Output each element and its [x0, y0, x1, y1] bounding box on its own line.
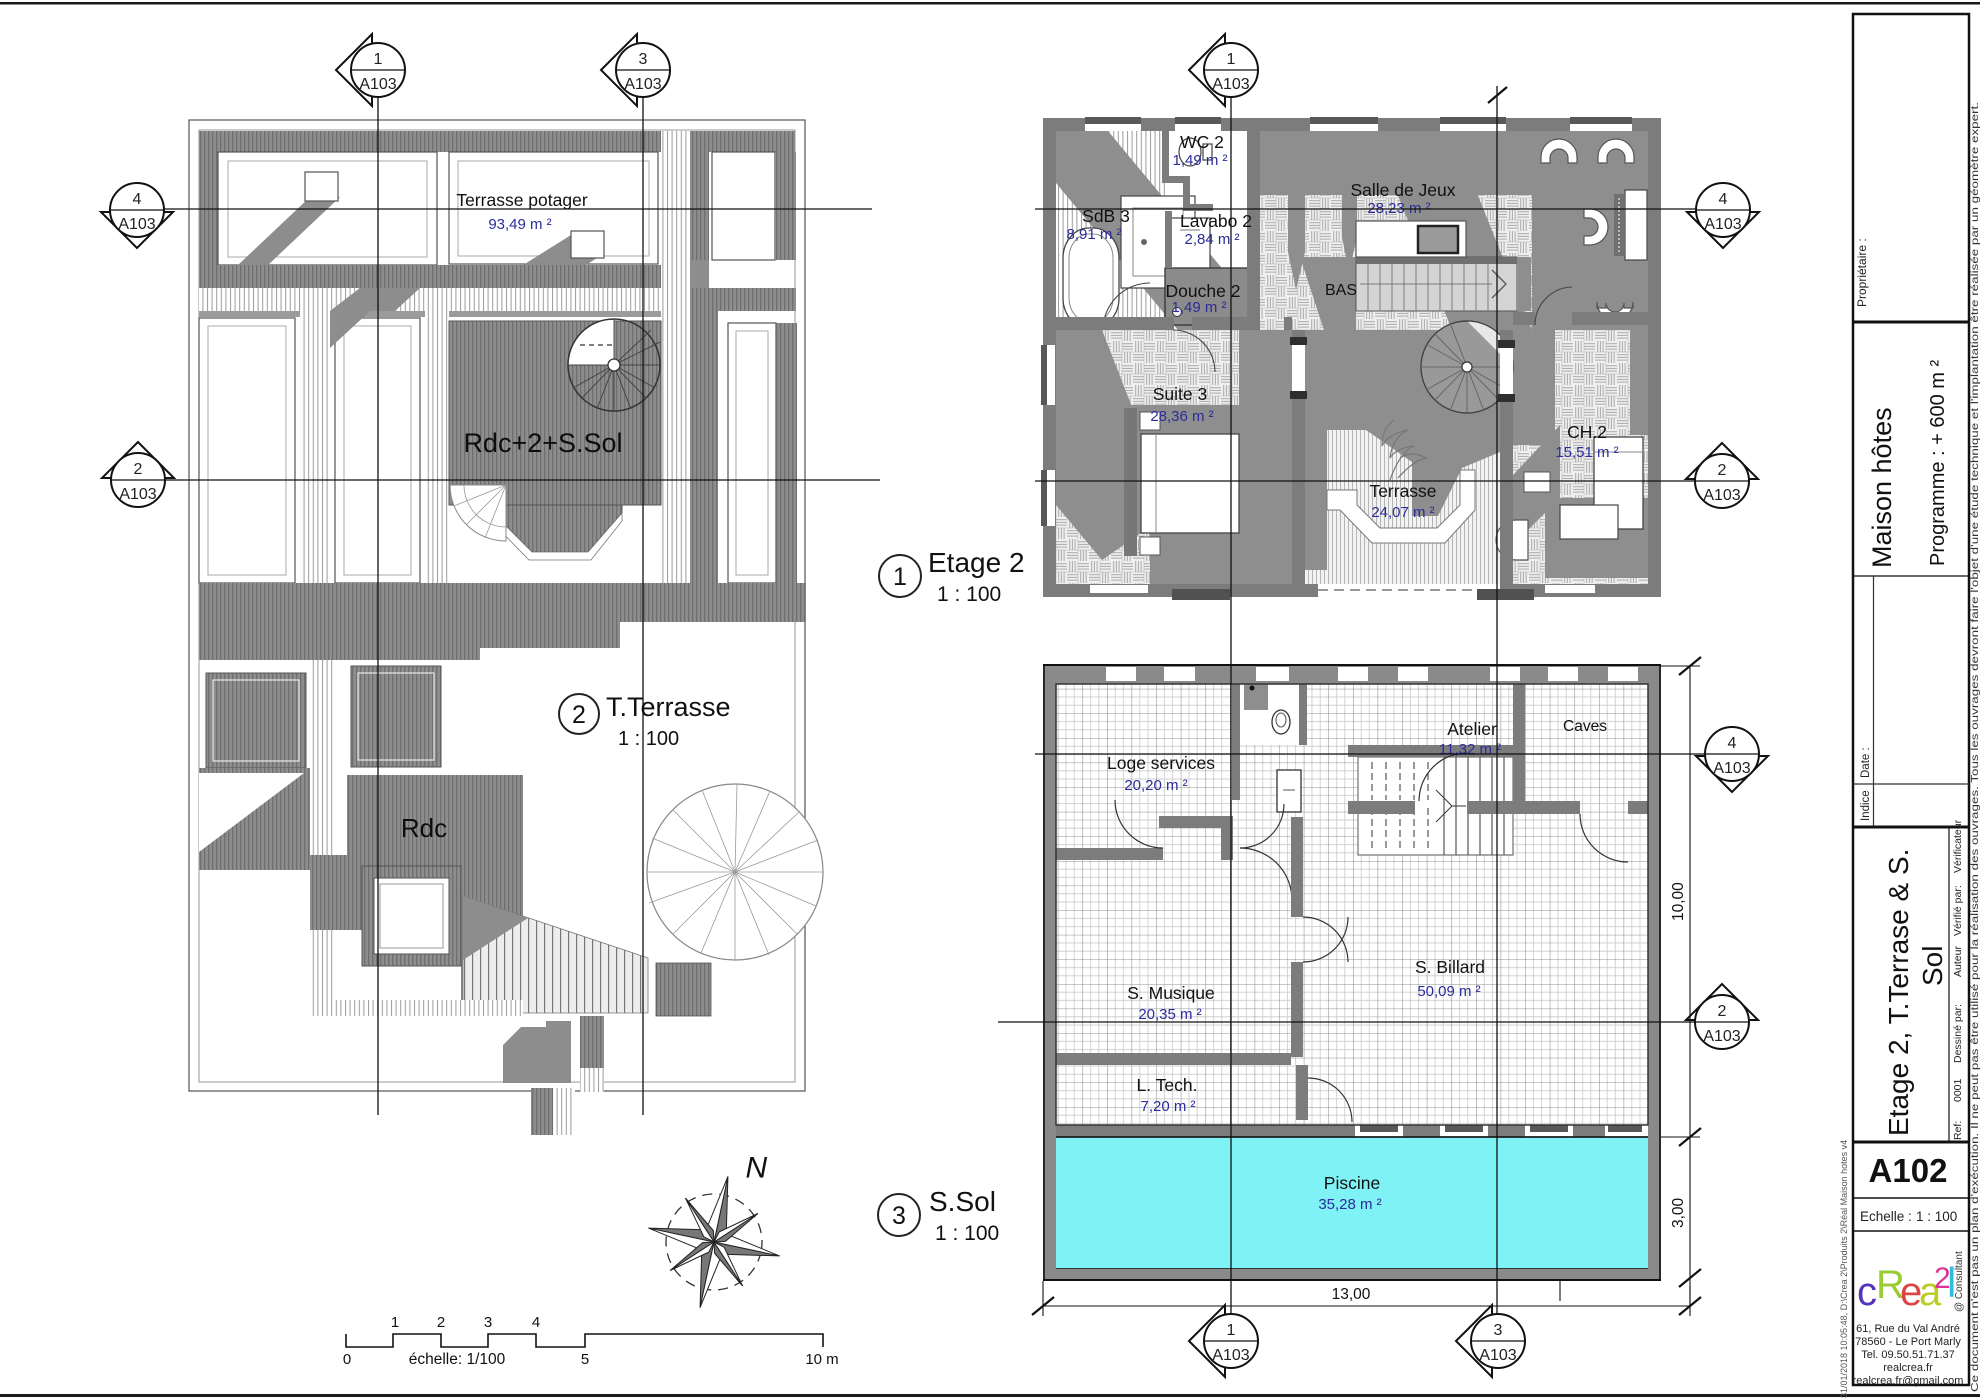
svg-text:Etage 2, T.Terrase & S.: Etage 2, T.Terrase & S.: [1883, 849, 1914, 1136]
svg-text:Programme : + 600 m ²: Programme : + 600 m ²: [1927, 359, 1949, 566]
svg-text:3: 3: [484, 1314, 492, 1331]
svg-text:13,00: 13,00: [1332, 1286, 1371, 1303]
svg-text:A103: A103: [118, 216, 155, 233]
svg-text:Terrasse: Terrasse: [1369, 481, 1436, 501]
svg-text:4: 4: [532, 1314, 540, 1331]
svg-text:A103: A103: [1212, 76, 1249, 93]
svg-text:1: 1: [391, 1314, 399, 1331]
svg-text:1 : 100: 1 : 100: [935, 1222, 999, 1245]
svg-text:28,36 m ²: 28,36 m ²: [1150, 408, 1213, 425]
svg-text:Auteur: Auteur: [1952, 946, 1964, 977]
svg-text:10,00: 10,00: [1670, 882, 1687, 921]
svg-text:1 : 100: 1 : 100: [1916, 1209, 1957, 1224]
svg-text:1,49 m ²: 1,49 m ²: [1171, 299, 1226, 316]
svg-text:20,35 m ²: 20,35 m ²: [1138, 1006, 1201, 1023]
svg-text:A102: A102: [1869, 1152, 1948, 1189]
svg-text:3: 3: [1494, 1322, 1503, 1339]
svg-text:1,49 m ²: 1,49 m ²: [1172, 152, 1227, 169]
svg-text:11,32 m ²: 11,32 m ²: [1439, 741, 1501, 758]
svg-text:A103: A103: [359, 76, 396, 93]
svg-text:2: 2: [134, 461, 143, 478]
svg-text:A103: A103: [1704, 216, 1741, 233]
svg-text:c: c: [1857, 1270, 1877, 1314]
svg-text:A103: A103: [624, 76, 661, 93]
svg-text:Caves: Caves: [1563, 718, 1607, 735]
svg-text:0001: 0001: [1952, 1078, 1964, 1102]
svg-text:Rdc+2+S.Sol: Rdc+2+S.Sol: [463, 428, 622, 458]
svg-text:A103: A103: [1703, 487, 1740, 504]
svg-text:Echelle :: Echelle :: [1860, 1209, 1912, 1224]
svg-text:3: 3: [892, 1202, 906, 1230]
svg-text:S. Musique: S. Musique: [1127, 983, 1215, 1003]
svg-text:35,28 m ²: 35,28 m ²: [1318, 1196, 1381, 1213]
svg-text:Date :: Date :: [1860, 747, 1872, 778]
svg-text:8,91 m ²: 8,91 m ²: [1066, 226, 1121, 243]
svg-text:31/01/2018 10:05:48, D:\Crea: 31/01/2018 10:05:48, D:\Crea 2\Produits …: [1839, 1140, 1849, 1398]
svg-text:3,00: 3,00: [1670, 1197, 1687, 1228]
svg-text:Loge services: Loge services: [1107, 753, 1215, 773]
svg-text:Suite 3: Suite 3: [1153, 384, 1207, 404]
svg-text:T.Terrasse: T.Terrasse: [606, 692, 731, 722]
svg-text:realcrea.fr: realcrea.fr: [1883, 1362, 1933, 1374]
svg-text:A103: A103: [119, 486, 156, 503]
svg-text:Douche 2: Douche 2: [1166, 281, 1241, 301]
svg-text:Rdc: Rdc: [401, 813, 447, 843]
svg-text:Ce document n'est pas un plan: Ce document n'est pas un plan d'exécutio…: [1970, 102, 1980, 1392]
svg-text:50,09 m ²: 50,09 m ²: [1417, 983, 1480, 1000]
svg-text:Propriétaire :: Propriétaire :: [1855, 238, 1869, 307]
svg-text:1: 1: [893, 563, 907, 591]
svg-text:A103: A103: [1713, 760, 1750, 777]
svg-text:2: 2: [572, 701, 586, 729]
svg-text:Terrasse potager: Terrasse potager: [456, 190, 587, 210]
svg-text:61, Rue du Val André: 61, Rue du Val André: [1856, 1323, 1960, 1335]
svg-text:N: N: [746, 1151, 768, 1184]
svg-text:Atelier: Atelier: [1447, 719, 1497, 739]
svg-text:1 : 100: 1 : 100: [937, 583, 1001, 606]
svg-text:Dessiné par:: Dessiné par:: [1952, 1004, 1964, 1063]
svg-text:2: 2: [437, 1314, 445, 1331]
svg-text:1: 1: [1227, 1322, 1236, 1339]
svg-text:Lavabo 2: Lavabo 2: [1180, 211, 1252, 231]
svg-text:Indice: Indice: [1860, 790, 1872, 821]
svg-text:S. Billard: S. Billard: [1415, 957, 1485, 977]
svg-text:Vérifié par:: Vérifié par:: [1952, 885, 1964, 936]
svg-text:Ref:: Ref:: [1952, 1121, 1964, 1140]
svg-text:CH.2: CH.2: [1567, 422, 1607, 442]
svg-text:WC 2: WC 2: [1180, 132, 1224, 152]
svg-text:L. Tech.: L. Tech.: [1137, 1075, 1198, 1095]
svg-text:5: 5: [581, 1351, 589, 1368]
svg-text:93,49 m ²: 93,49 m ²: [488, 216, 551, 233]
svg-text:realcrea.fr@gmail.com: realcrea.fr@gmail.com: [1853, 1375, 1964, 1387]
svg-text:10 m: 10 m: [805, 1351, 838, 1368]
svg-text:1: 1: [374, 51, 383, 68]
svg-text:BAS: BAS: [1325, 282, 1357, 299]
svg-text:A103: A103: [1479, 1347, 1516, 1364]
svg-text:Piscine: Piscine: [1324, 1173, 1380, 1193]
svg-text:A103: A103: [1212, 1347, 1249, 1364]
svg-text:78560 - Le Port Marly: 78560 - Le Port Marly: [1855, 1336, 1961, 1348]
svg-text:A103: A103: [1703, 1028, 1740, 1045]
svg-text:Vérificateur: Vérificateur: [1952, 819, 1964, 873]
svg-text:4: 4: [1719, 191, 1728, 208]
svg-text:1: 1: [1227, 51, 1236, 68]
svg-text:échelle: 1/100: échelle: 1/100: [409, 1351, 506, 1368]
svg-text:24,07 m ²: 24,07 m ²: [1371, 504, 1434, 521]
svg-text:S.Sol: S.Sol: [929, 1186, 996, 1217]
svg-text:4: 4: [133, 191, 142, 208]
svg-text:20,20 m ²: 20,20 m ²: [1124, 777, 1187, 794]
svg-text:0: 0: [343, 1351, 351, 1368]
svg-text:Maison hôtes: Maison hôtes: [1867, 407, 1897, 568]
svg-text:Salle de Jeux: Salle de Jeux: [1350, 180, 1455, 200]
svg-text:@ Consultant: @ Consultant: [1954, 1251, 1965, 1312]
svg-text:1 : 100: 1 : 100: [618, 728, 679, 750]
svg-text:2: 2: [1718, 1003, 1727, 1020]
svg-text:Etage 2: Etage 2: [928, 547, 1025, 578]
svg-text:3: 3: [639, 51, 648, 68]
svg-text:Sol: Sol: [1917, 946, 1948, 986]
svg-text:2: 2: [1718, 462, 1727, 479]
svg-text:7,20 m ²: 7,20 m ²: [1140, 1098, 1195, 1115]
svg-text:Tel. 09.50.51.71.37: Tel. 09.50.51.71.37: [1861, 1349, 1955, 1361]
svg-text:15,51 m ²: 15,51 m ²: [1555, 444, 1618, 461]
svg-text:4: 4: [1728, 735, 1737, 752]
